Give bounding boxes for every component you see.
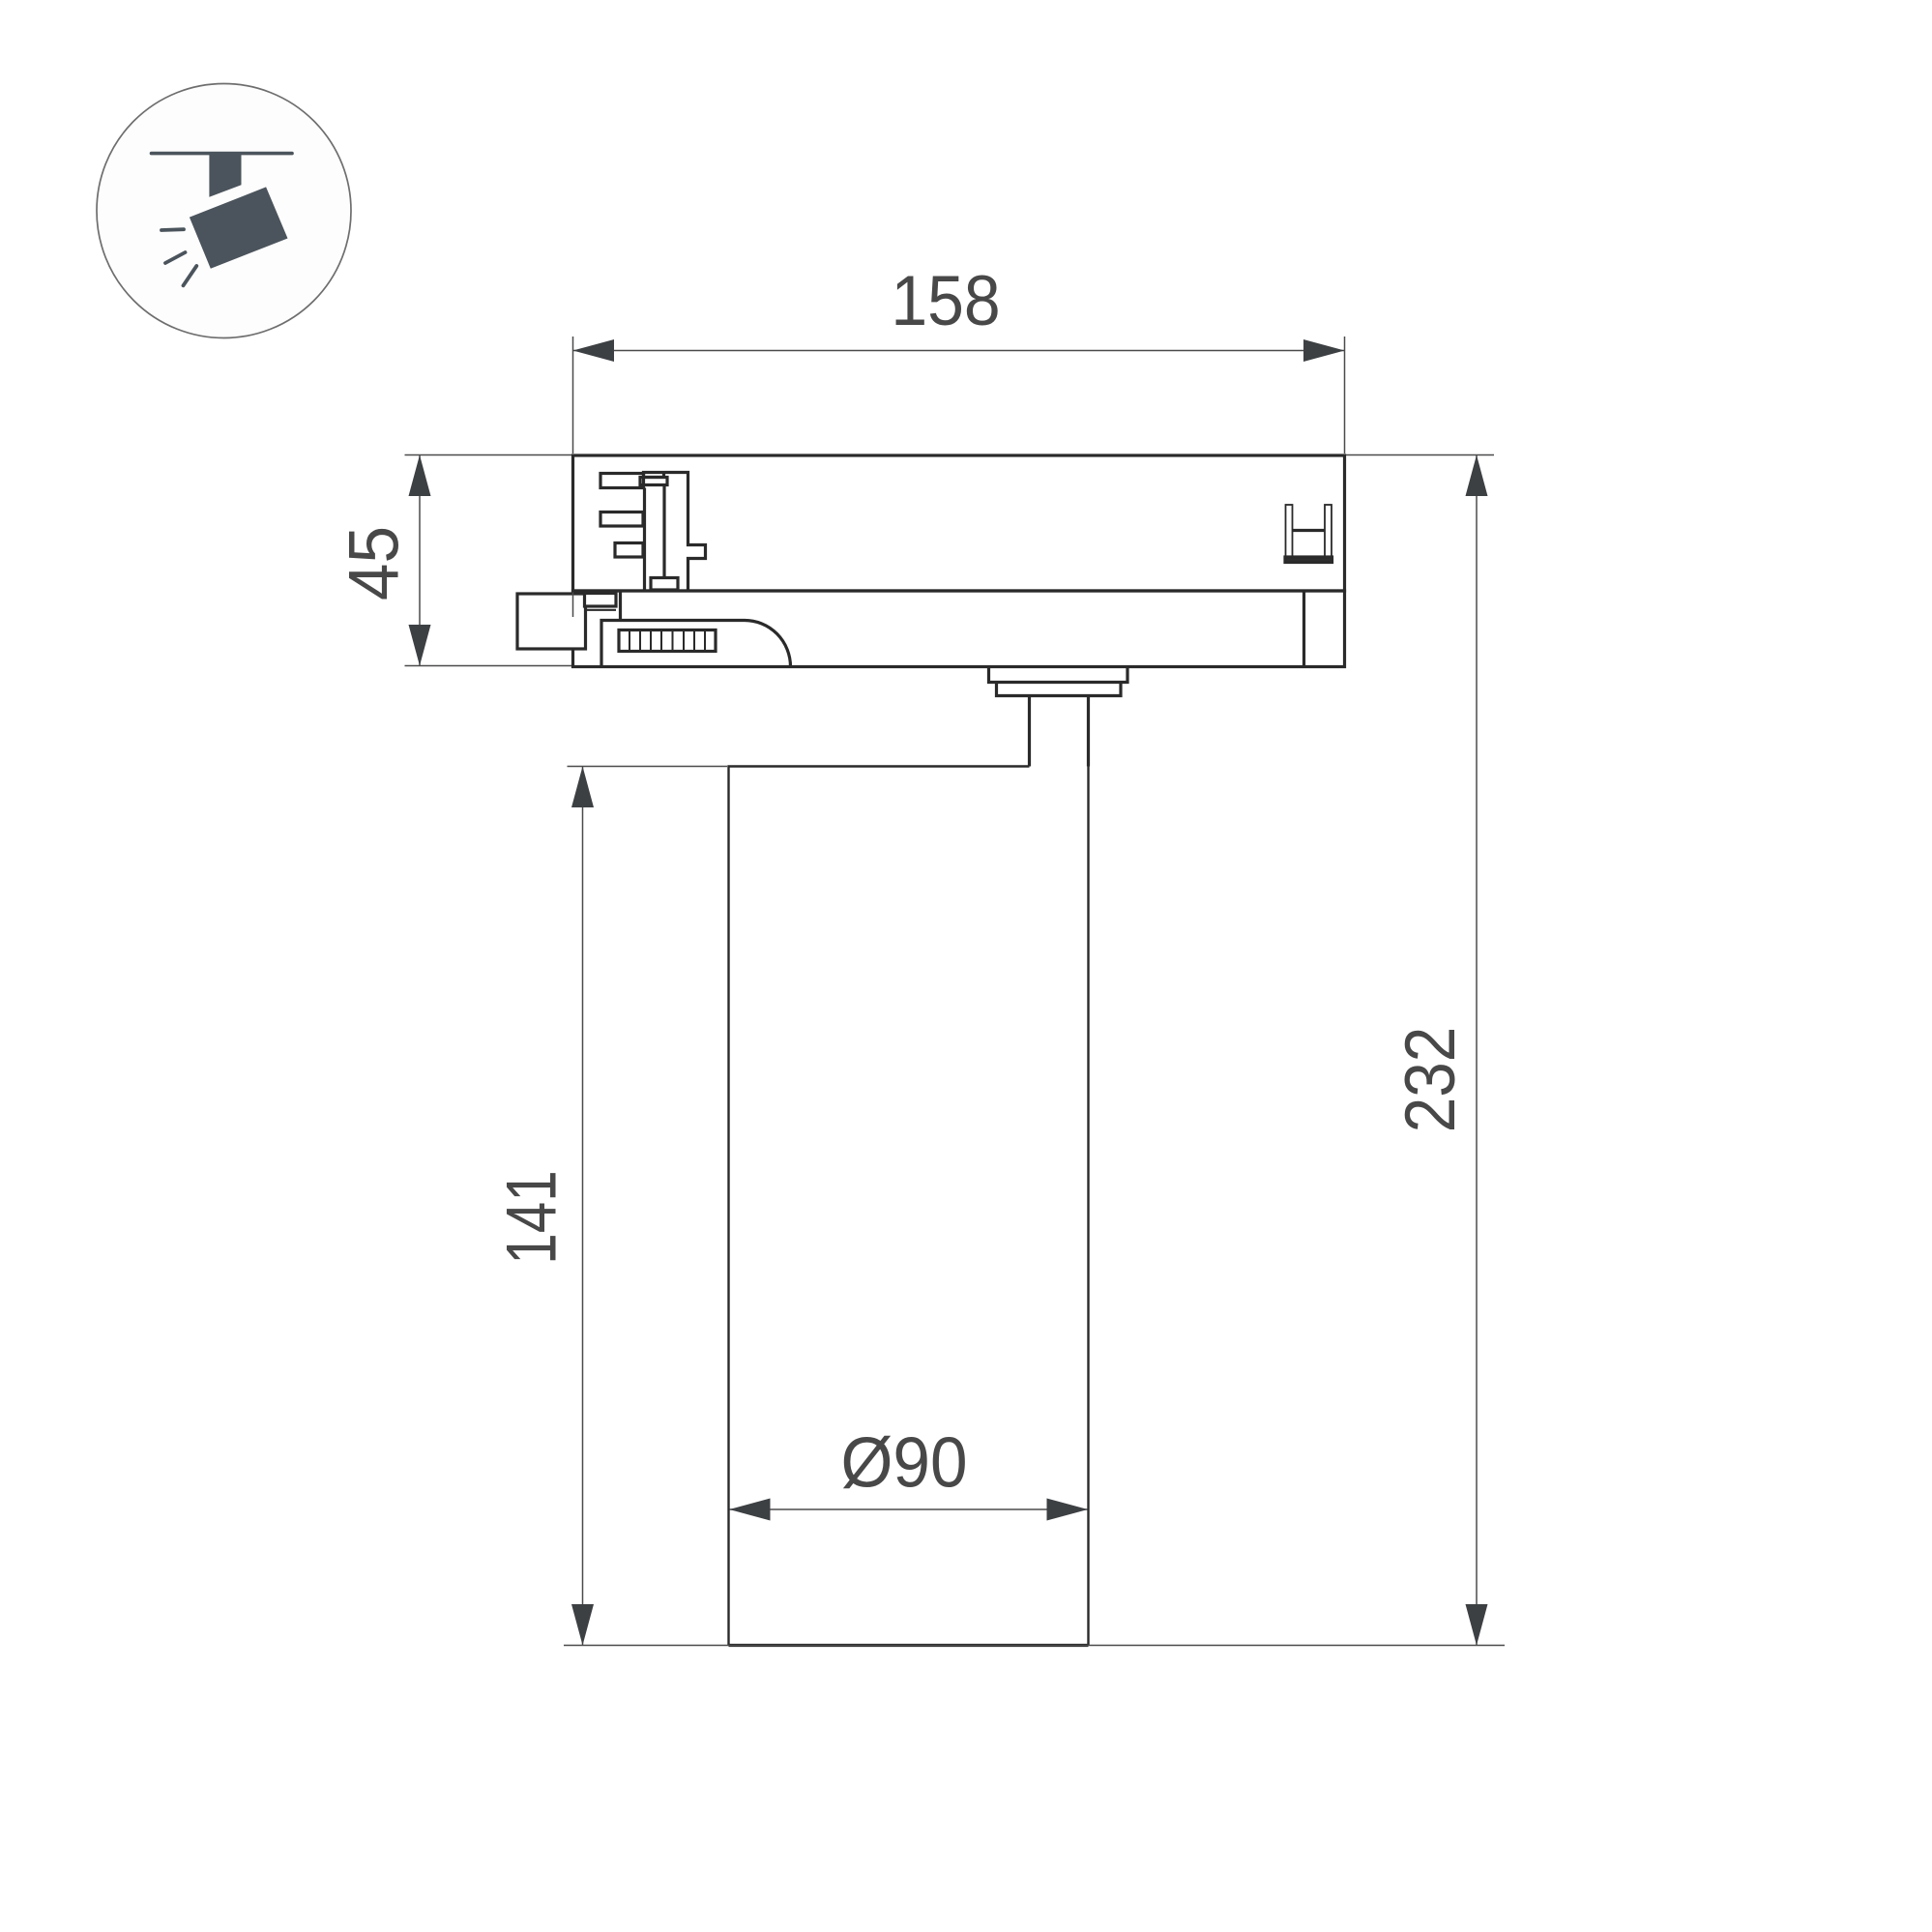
svg-text:232: 232 <box>1390 1027 1470 1133</box>
svg-text:Ø90: Ø90 <box>840 1424 967 1503</box>
svg-text:141: 141 <box>492 1170 571 1264</box>
svg-text:158: 158 <box>891 261 1000 340</box>
svg-text:45: 45 <box>336 526 414 600</box>
